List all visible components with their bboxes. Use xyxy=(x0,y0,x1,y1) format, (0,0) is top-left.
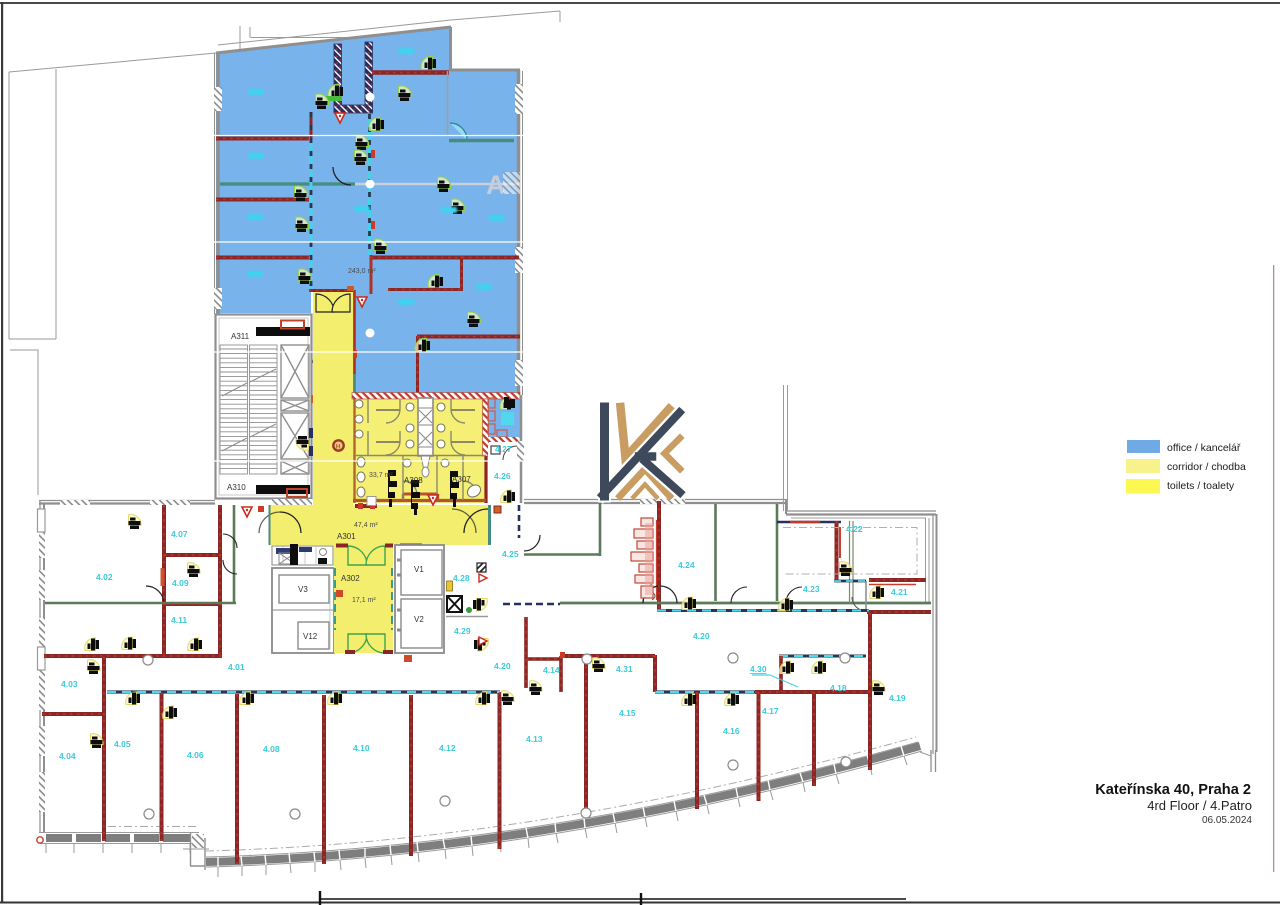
svg-text:A302: A302 xyxy=(341,574,360,583)
svg-text:A301: A301 xyxy=(337,532,356,541)
svg-text:4.13: 4.13 xyxy=(526,734,543,744)
svg-text:4.04: 4.04 xyxy=(59,751,76,761)
svg-text:4.25: 4.25 xyxy=(502,549,519,559)
svg-text:4.20: 4.20 xyxy=(693,631,710,641)
svg-text:4.18: 4.18 xyxy=(830,683,847,693)
svg-text:4.12: 4.12 xyxy=(439,743,456,753)
svg-text:V2: V2 xyxy=(414,615,424,624)
svg-text:4.14: 4.14 xyxy=(543,665,560,675)
svg-text:4.07: 4.07 xyxy=(171,529,188,539)
svg-text:A: A xyxy=(486,170,506,200)
svg-text:4.26: 4.26 xyxy=(494,471,511,481)
svg-text:corridor / chodba: corridor / chodba xyxy=(1167,461,1246,473)
svg-text:office / kancelář: office / kancelář xyxy=(1167,442,1241,454)
svg-text:33,7 m²: 33,7 m² xyxy=(369,472,393,479)
svg-text:4.02: 4.02 xyxy=(96,572,113,582)
svg-text:4.05: 4.05 xyxy=(114,739,131,749)
svg-text:243,0 m²: 243,0 m² xyxy=(348,268,376,275)
svg-text:4.28: 4.28 xyxy=(453,573,470,583)
svg-text:4.21: 4.21 xyxy=(891,587,908,597)
svg-text:47,4 m²: 47,4 m² xyxy=(354,522,378,529)
svg-text:4.31: 4.31 xyxy=(616,664,633,674)
svg-text:4.15: 4.15 xyxy=(619,708,636,718)
svg-text:4.09: 4.09 xyxy=(172,578,189,588)
svg-text:4.22: 4.22 xyxy=(846,524,863,534)
svg-text:4.10: 4.10 xyxy=(353,743,370,753)
svg-text:V12: V12 xyxy=(303,632,318,641)
svg-text:toilets / toalety: toilets / toalety xyxy=(1167,480,1235,492)
svg-text:A310: A310 xyxy=(227,483,246,492)
svg-text:V1: V1 xyxy=(414,565,424,574)
svg-text:A307: A307 xyxy=(452,475,471,484)
svg-text:H: H xyxy=(336,443,341,450)
svg-text:4.23: 4.23 xyxy=(803,584,820,594)
svg-text:4.20: 4.20 xyxy=(494,661,511,671)
svg-text:4rd Floor / 4.Patro: 4rd Floor / 4.Patro xyxy=(1147,798,1252,813)
svg-text:A311: A311 xyxy=(231,332,250,341)
svg-text:4.19: 4.19 xyxy=(889,693,906,703)
svg-text:17,1 m²: 17,1 m² xyxy=(352,597,376,604)
svg-text:4.06: 4.06 xyxy=(187,750,204,760)
svg-text:4.11: 4.11 xyxy=(171,615,187,625)
svg-text:4.16: 4.16 xyxy=(723,726,740,736)
svg-text:4.30: 4.30 xyxy=(750,664,767,674)
svg-text:4.17: 4.17 xyxy=(762,706,779,716)
svg-text:06.05.2024: 06.05.2024 xyxy=(1202,815,1252,826)
svg-text:V3: V3 xyxy=(298,585,308,594)
svg-text:Kateřínska 40, Praha 2: Kateřínska 40, Praha 2 xyxy=(1095,782,1251,798)
svg-text:4.24: 4.24 xyxy=(678,560,695,570)
svg-text:4.27: 4.27 xyxy=(495,444,512,454)
svg-text:4.08: 4.08 xyxy=(263,744,280,754)
svg-text:4.01: 4.01 xyxy=(228,662,245,672)
svg-text:4.29: 4.29 xyxy=(454,626,471,636)
svg-text:4.03: 4.03 xyxy=(61,679,78,689)
svg-text:A308: A308 xyxy=(404,476,423,485)
